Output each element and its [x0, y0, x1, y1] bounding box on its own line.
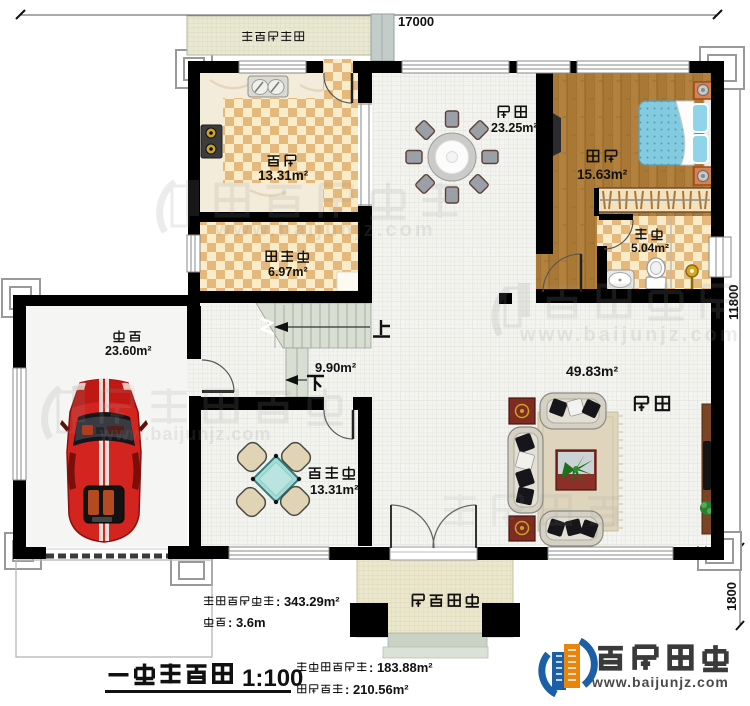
svg-text:www.baijunjz.com: www.baijunjz.com	[591, 674, 729, 690]
svg-text:www.baijunjz.com: www.baijunjz.com	[99, 424, 271, 444]
svg-text:: 343.29m²: : 343.29m²	[276, 594, 340, 609]
svg-text:www.baijunjz.com: www.baijunjz.com	[519, 324, 741, 346]
svg-text:1800: 1800	[724, 582, 739, 611]
svg-text:17000: 17000	[398, 14, 434, 29]
svg-text:1:100: 1:100	[242, 665, 303, 692]
svg-text:5.04m²: 5.04m²	[631, 241, 669, 255]
svg-text:9.90m²: 9.90m²	[315, 360, 357, 375]
svg-text:www.baijunjz.com: www.baijunjz.com	[214, 219, 436, 241]
svg-text:: 210.56m²: : 210.56m²	[345, 682, 409, 697]
svg-text:23.60m²: 23.60m²	[105, 344, 152, 358]
svg-text:6.97m²: 6.97m²	[268, 265, 308, 279]
svg-text:13.31m²: 13.31m²	[258, 168, 309, 183]
svg-text:: 3.6m: : 3.6m	[228, 615, 266, 630]
svg-text:: 183.88m²: : 183.88m²	[369, 660, 433, 675]
svg-text:23.25m²: 23.25m²	[491, 121, 538, 135]
svg-text:15.63m²: 15.63m²	[577, 167, 628, 182]
svg-text:13.31m²: 13.31m²	[310, 482, 359, 497]
svg-text:49.83m²: 49.83m²	[566, 363, 618, 379]
